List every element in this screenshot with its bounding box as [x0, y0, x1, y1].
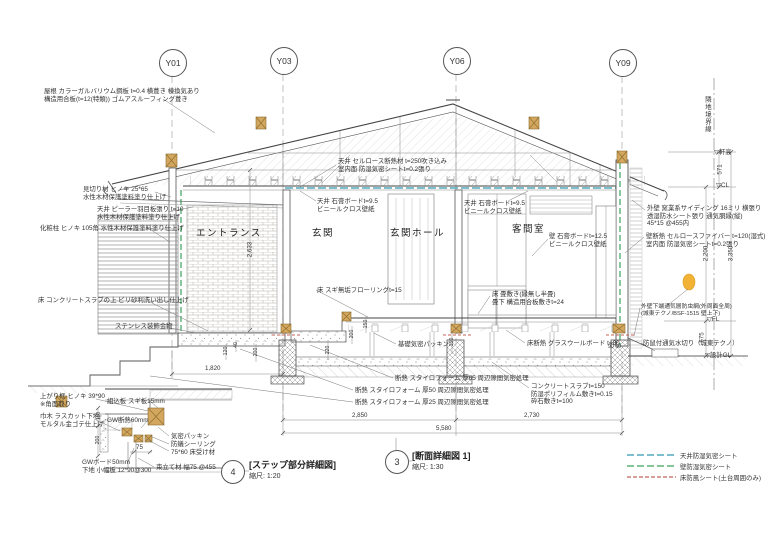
level-gl: ▽設計GL — [705, 350, 731, 359]
note-bougi-sealing: 防蟻シーリング — [171, 441, 216, 449]
legend-ceiling-sheet: 天井防湿気密シート — [680, 451, 738, 460]
dim-3350: 3,350 — [728, 236, 735, 272]
dim-75: 75 — [136, 444, 143, 451]
note-gaiheki: 外壁 窯業系サイディング 16ミリ 横張り 透湿防水シート張り 通気胴縁(縦) … — [647, 205, 761, 228]
drawing-sheet: Y01 Y03 Y06 Y09 エントランス 玄関 玄関ホール 客間室 屋根 カ… — [0, 0, 768, 543]
note-kiso-packing: 基礎気密パッキン — [398, 341, 449, 349]
detail4-title: [ステップ部分詳細図] 縮尺: 1:20 — [249, 458, 336, 481]
room-label-genkan: 玄関 — [312, 225, 334, 239]
note-gw-board: GWボード50mm 下地 小幅板 12*90@300 — [82, 459, 151, 474]
note-ceiling-gypsum-left: 天井 石膏ボードt=9.5 ビニールクロス壁紙 — [317, 198, 378, 213]
siding-hatch — [630, 168, 642, 348]
note-kumikomi: 組込板 スギ板15mm — [107, 398, 165, 406]
room-label-genkan-hall: 玄関ホール — [390, 225, 445, 239]
dim-90-60: 90 60 — [608, 344, 621, 350]
dim-150b: 150 — [449, 324, 455, 360]
dim-40: 40 — [233, 327, 239, 363]
note-slab: コンクリートスラブt=150 防湿ポリフィルム敷きt=0.15 砕石敷きt=10… — [531, 383, 613, 406]
dim-2633: 2,633 — [247, 232, 254, 268]
note-insul-25: 断熱 スタイロフォーム 厚25 周辺隙間気密処理 — [355, 399, 489, 407]
dim-200: 200 — [253, 334, 259, 370]
dim-2850: 2,850 — [352, 412, 367, 419]
note-stainless: ステンレス装飾金物 — [115, 323, 173, 331]
note-ceiling-peeler: 天井 ピーラー羽目板張り t=10 水性木材保護塗料塗り仕上げ — [97, 206, 183, 221]
grid-marker-y03: Y03 — [270, 47, 298, 75]
dim-150: 150 — [363, 306, 369, 342]
roof — [104, 100, 667, 200]
dim-1820: 1,820 — [205, 365, 220, 372]
detail4-title-name: [ステップ部分詳細図] — [249, 458, 336, 471]
detail3-title-name: [断面詳細図 1] — [412, 449, 471, 462]
ranma-blind — [530, 196, 592, 214]
note-wall-gypsum: 壁 石膏ボードt=12.5 ビニールクロス壁紙 — [549, 233, 607, 248]
note-gw-insul: GW断熱60mm — [107, 417, 149, 425]
detail4-number: 4 — [221, 460, 245, 484]
note-mizukiri: 防鼠付通気水切り（城東テクノ） — [643, 340, 738, 348]
legend-dashes — [627, 455, 676, 477]
note-floor-washout: 床 コンクリートスラブの上 ビリ砂利洗い出し仕上げ — [38, 297, 189, 305]
legend-floor-sheet: 床防風シート(土台周囲のみ) — [680, 473, 761, 482]
note-floor-gw: 床断熱 グラスウールボード t=80 — [527, 340, 620, 348]
dim-2730: 2,730 — [524, 412, 539, 419]
note-floor-tatami: 床 畳敷き(縁無し半畳) 畳下 構造用合板敷きt=24 — [492, 291, 564, 306]
boundary-label: 隣地境界線 — [703, 96, 712, 133]
legend-wall-sheet: 壁防湿気密シート — [680, 462, 731, 471]
note-tsuka: 束立て材 幅75 @455 — [156, 464, 216, 472]
detail3-title-scale: 縮尺: 1:30 — [412, 462, 471, 472]
dim-220: 220 — [325, 332, 331, 368]
dim-571: 571 — [717, 152, 724, 188]
note-ceiling-cellulose: 天井 セルロース断熱材 t=250吹き込み 室内面 防湿気密シートt=0.2張り — [338, 158, 447, 173]
porch-left — [28, 168, 285, 393]
note-kimitsu-packing: 気密パッキン — [171, 433, 209, 441]
dim-575: 575 — [699, 320, 706, 356]
note-insul-65: 断熱 スタイロフォーム 厚65 周辺隙間気密処理 — [395, 375, 529, 383]
grid-marker-y01: Y01 — [159, 49, 187, 77]
note-roof: 屋根 カラーガルバリウム鋼板 t=0.4 横葺き 棟換気あり 構造用合板(t=1… — [44, 88, 200, 103]
detail4-title-scale: 縮尺: 1:20 — [249, 471, 336, 481]
note-floor-sugi: 床 スギ無垢フローリングt=15 — [317, 287, 402, 295]
detail3-number: 3 — [385, 450, 409, 474]
note-mikiri: 見切り材 ヒノキ 25*65 水性木材保護塗料塗り仕上げ — [83, 186, 166, 201]
grid-marker-y09: Y09 — [609, 49, 637, 77]
room-label-kyakuma: 客間室 — [512, 221, 545, 235]
dim-120: 120 — [223, 333, 229, 369]
dim-5580: 5,580 — [436, 425, 451, 432]
dim-200c: 200 — [95, 422, 101, 458]
level-fl: ▽FL — [707, 315, 719, 323]
grid-marker-y06: Y06 — [443, 47, 471, 75]
dim-2200: 2,200 — [703, 236, 710, 272]
note-insul-50: 断熱 スタイロフォーム 厚50 周辺隙間気密処理 — [355, 387, 489, 395]
dim-200b: 200 — [349, 316, 355, 352]
note-ceiling-gypsum-right: 天井 石膏ボードt=9.5 ビニールクロス壁紙 — [464, 200, 525, 215]
note-yuka-uke: 75*60 床受け材 — [171, 449, 215, 457]
detail3-title: [断面詳細図 1] 縮尺: 1:30 — [412, 449, 471, 472]
vent-marker — [683, 274, 695, 290]
note-kesho-bashira: 化粧柱 ヒノキ 105角 水性木材保護塗料塗り仕上げ — [40, 225, 184, 233]
